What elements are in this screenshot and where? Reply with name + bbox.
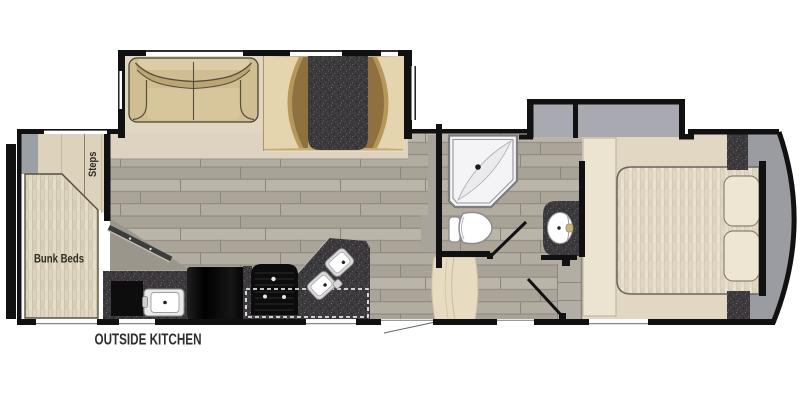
svg-text:Bunk Beds: Bunk Beds (34, 253, 84, 266)
svg-text:Steps: Steps (87, 151, 99, 177)
svg-text:OUTSIDE KITCHEN: OUTSIDE KITCHEN (94, 330, 201, 348)
